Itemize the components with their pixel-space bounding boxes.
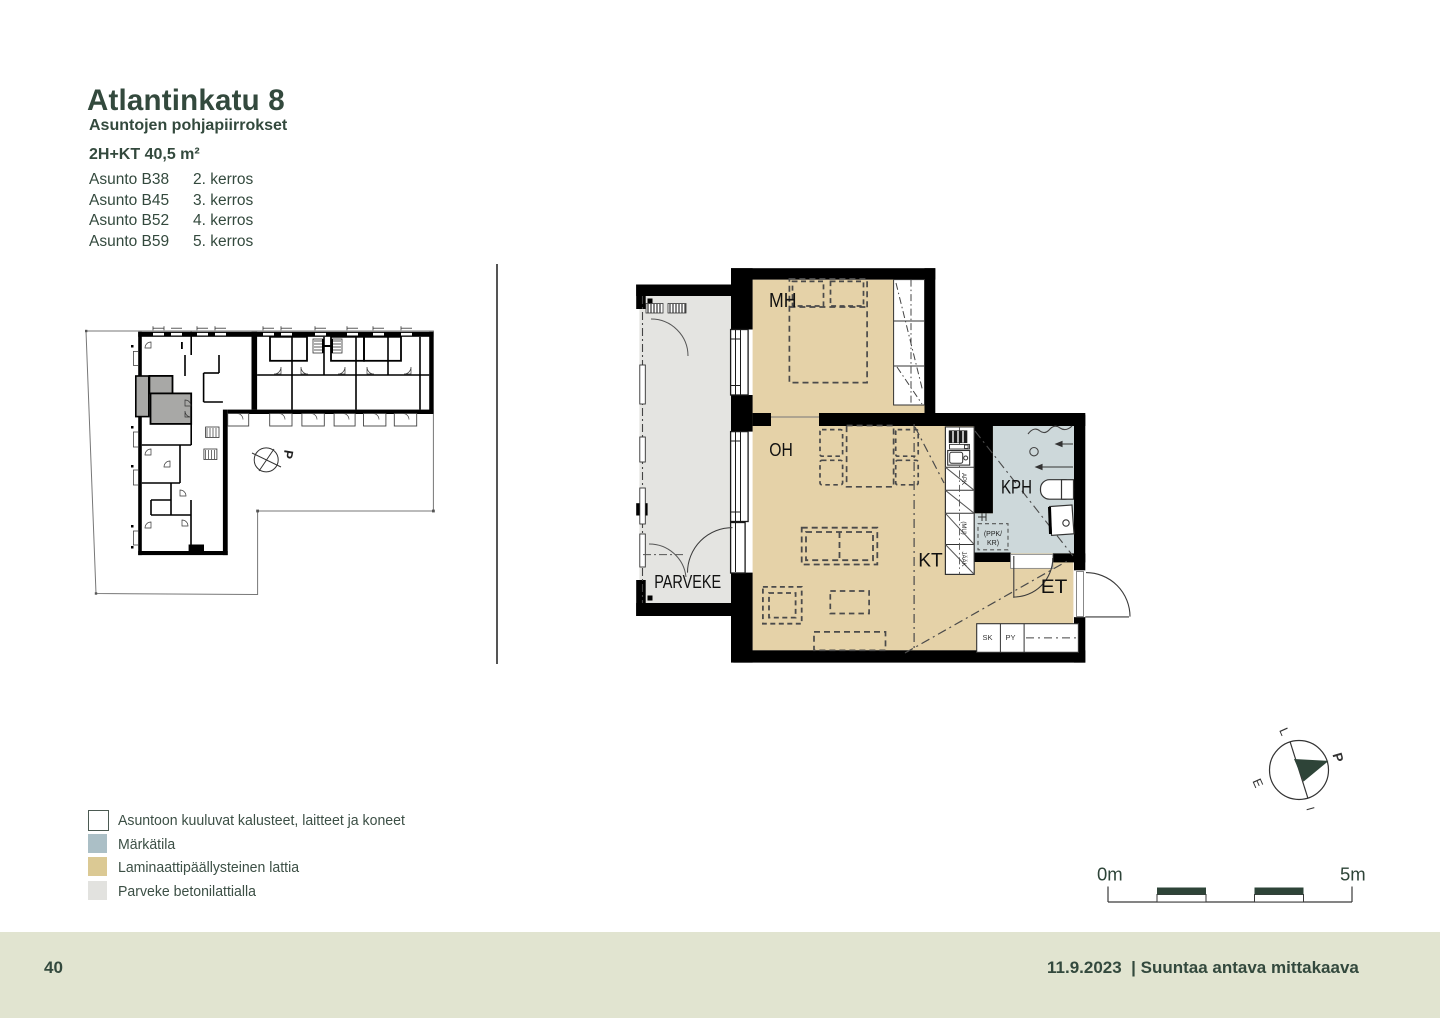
svg-text:KT: KT bbox=[918, 550, 943, 572]
svg-text:L: L bbox=[1276, 726, 1292, 738]
svg-text:KR): KR) bbox=[987, 540, 999, 547]
svg-text:PARVEKE: PARVEKE bbox=[654, 571, 721, 592]
svg-text:0m: 0m bbox=[1097, 864, 1123, 885]
svg-text:APK: APK bbox=[960, 473, 966, 485]
svg-text:MH: MH bbox=[769, 290, 797, 312]
svg-text:P: P bbox=[1330, 751, 1347, 764]
svg-text:(PPK/: (PPK/ bbox=[984, 531, 1002, 538]
svg-text:E: E bbox=[1249, 777, 1265, 790]
svg-text:SK: SK bbox=[983, 633, 993, 642]
svg-text:ET: ET bbox=[1041, 577, 1068, 598]
svg-text:PY: PY bbox=[1006, 633, 1016, 642]
svg-text:OH: OH bbox=[769, 439, 793, 460]
svg-text:5m: 5m bbox=[1340, 864, 1366, 885]
svg-text:KPH: KPH bbox=[1001, 477, 1032, 498]
svg-text:I: I bbox=[1303, 806, 1315, 812]
svg-text:P: P bbox=[280, 449, 296, 460]
svg-text:JÄÄK: JÄÄK bbox=[960, 551, 967, 566]
svg-text:(MU): (MU) bbox=[960, 521, 966, 534]
